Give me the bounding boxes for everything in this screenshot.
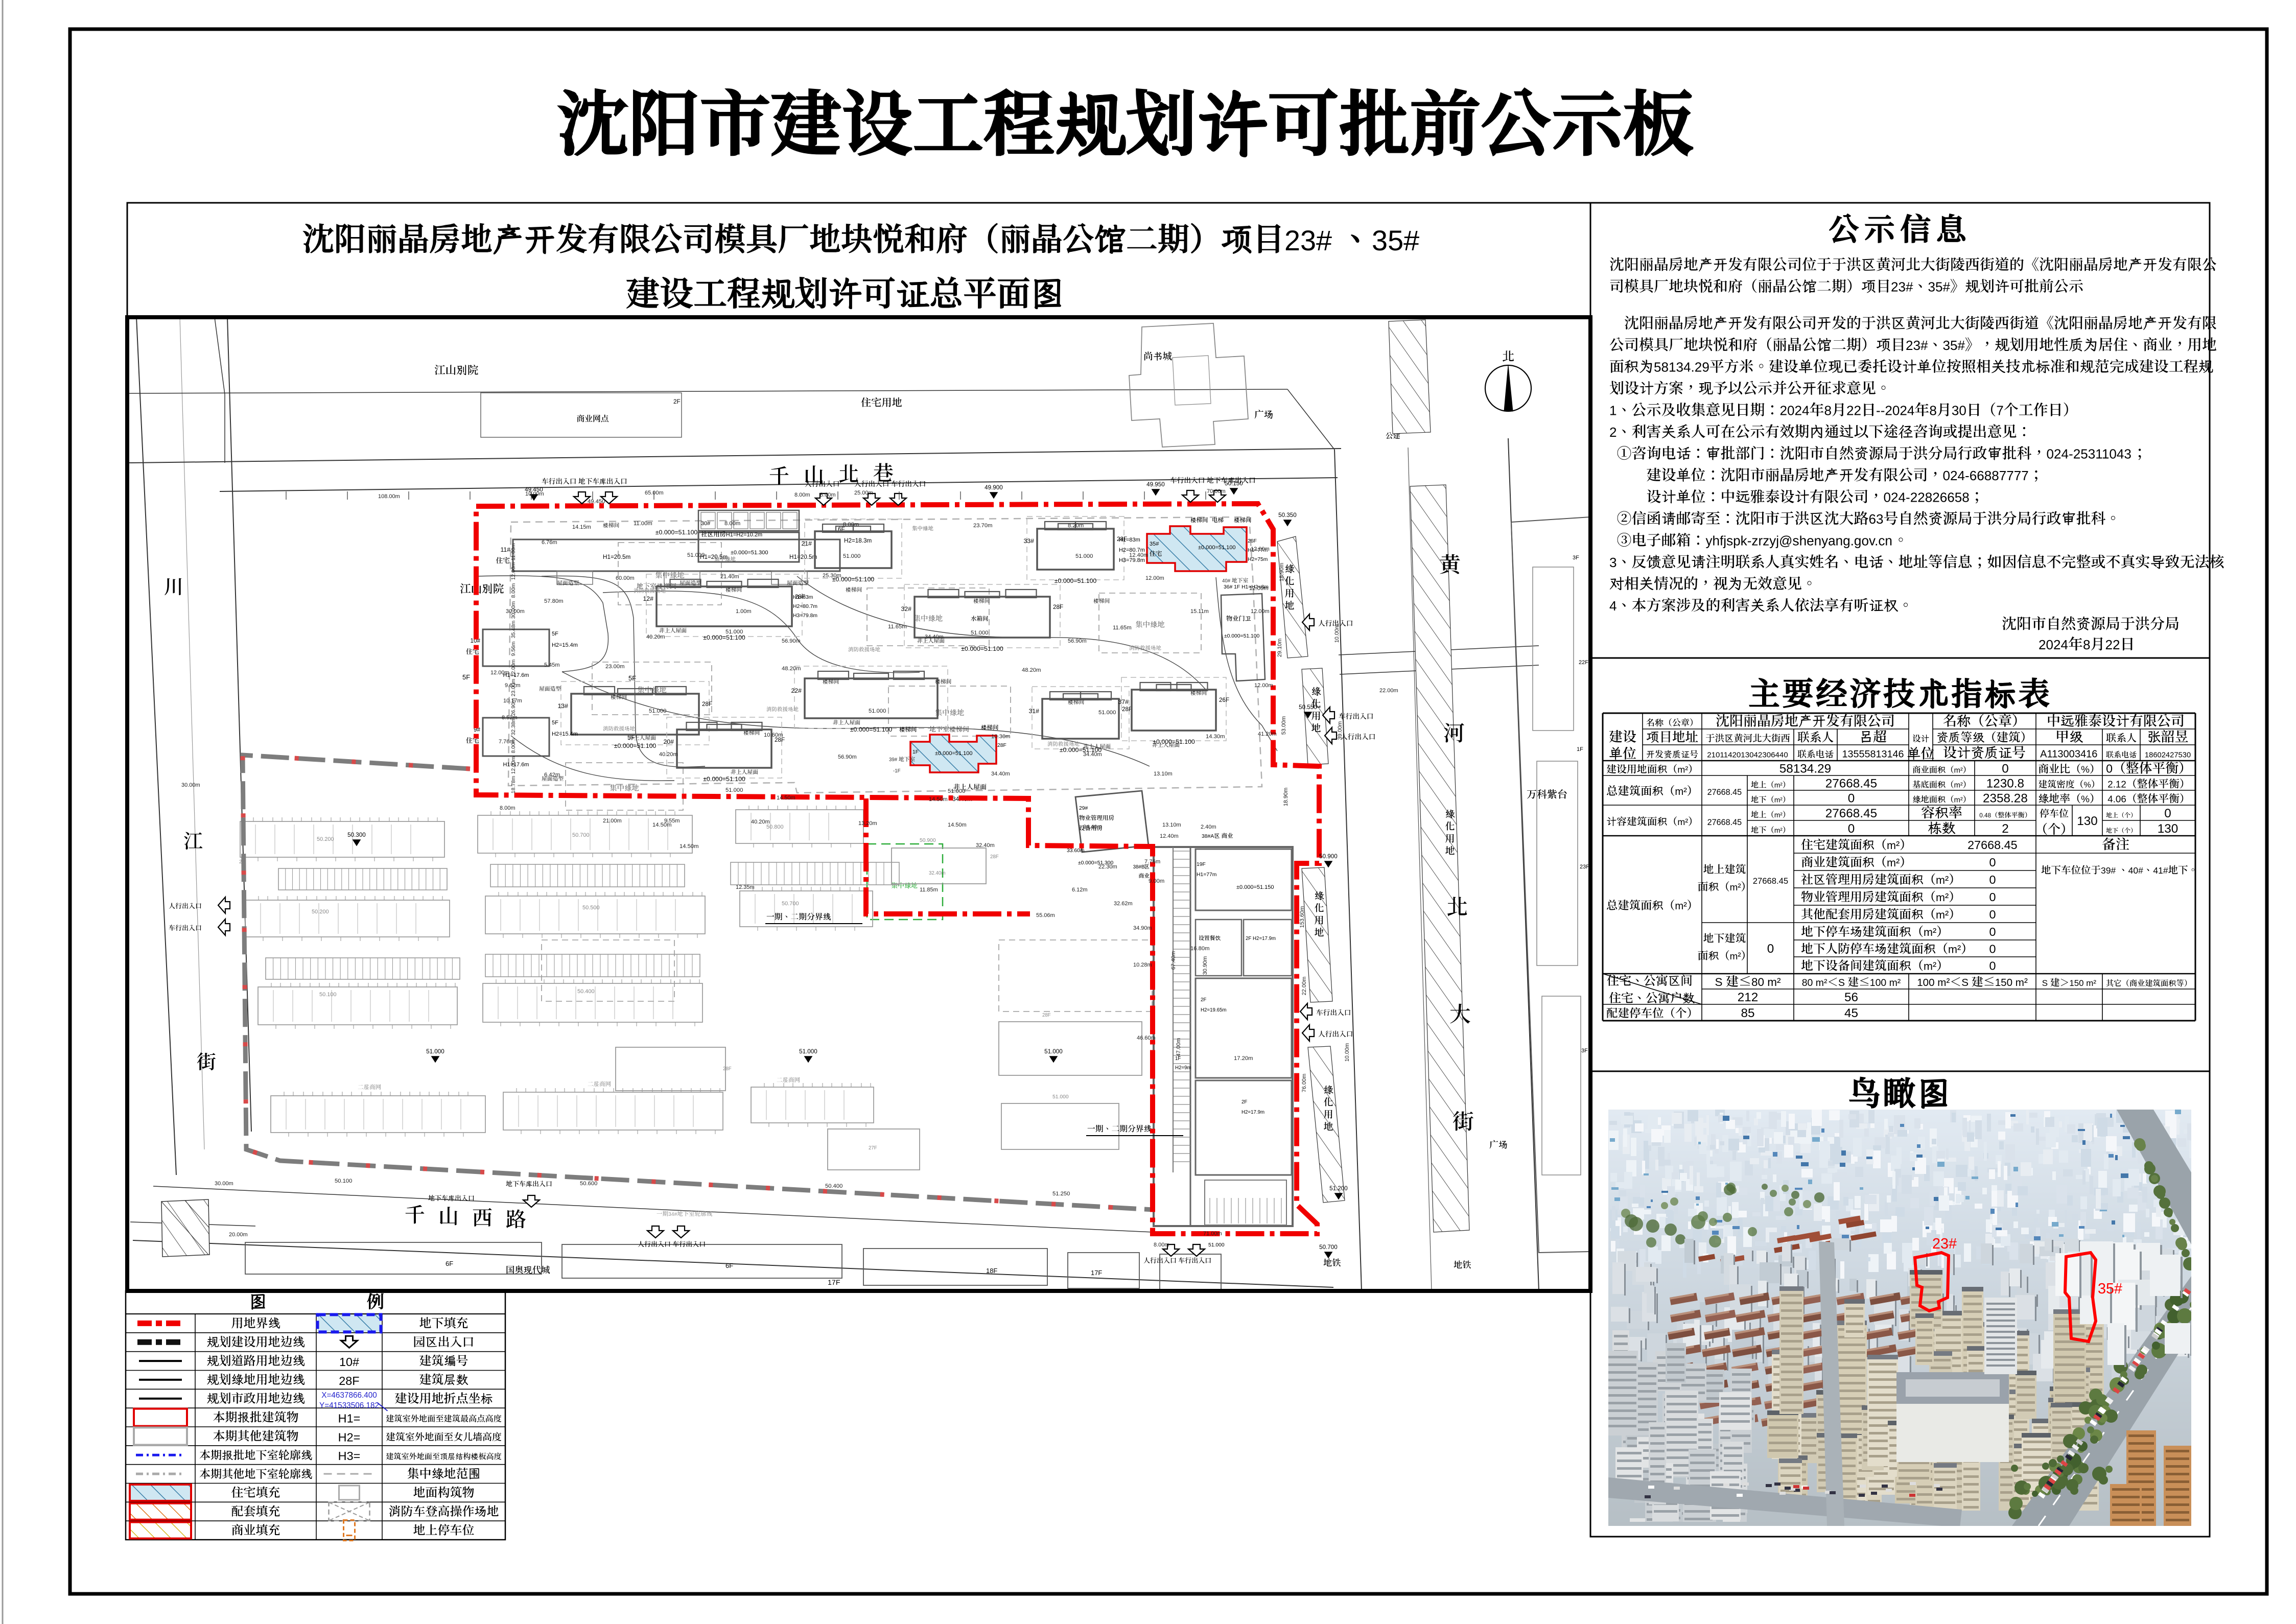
svg-text:6.42m: 6.42m — [544, 772, 560, 778]
svg-text:yhfjspk-zrzyj@shenyang.gov.cn: yhfjspk-zrzyj@shenyang.gov.cn — [1706, 533, 1892, 549]
svg-text:33#: 33# — [1023, 537, 1034, 545]
svg-text:S: S — [1838, 977, 1845, 988]
svg-text:21#: 21# — [801, 540, 812, 547]
svg-text:13.10m: 13.10m — [1154, 771, 1173, 777]
svg-text:51.000: 51.000 — [725, 787, 743, 793]
svg-text:H2=75m: H2=75m — [1248, 557, 1268, 562]
svg-text:31#: 31# — [1028, 708, 1039, 715]
svg-text:55.06m: 55.06m — [1036, 912, 1055, 919]
svg-text:m²: m² — [1675, 786, 1687, 797]
svg-text:H2=15.4m: H2=15.4m — [552, 731, 578, 737]
svg-text:%: % — [2081, 765, 2090, 775]
svg-text:51.000: 51.000 — [1052, 1094, 1069, 1100]
svg-text:50.100: 50.100 — [335, 1178, 352, 1184]
svg-text:10.00m: 10.00m — [1344, 1043, 1350, 1062]
svg-text:30: 30 — [1952, 403, 1966, 418]
svg-text:11.00m: 11.00m — [634, 521, 652, 527]
svg-text:50.900: 50.900 — [1319, 853, 1338, 860]
svg-text:51.000: 51.000 — [1098, 710, 1116, 716]
svg-text:H1=20.5m: H1=20.5m — [603, 554, 630, 560]
svg-text:Y=41533506.182: Y=41533506.182 — [319, 1401, 379, 1410]
svg-text:30#: 30# — [701, 521, 711, 527]
svg-text:51.000: 51.000 — [869, 708, 886, 714]
svg-text:28F: 28F — [1122, 706, 1132, 713]
svg-text:50.300: 50.300 — [347, 832, 366, 838]
svg-text:50.400: 50.400 — [577, 988, 595, 995]
svg-text:±0.000=51.100: ±0.000=51.100 — [935, 750, 972, 757]
svg-text:7: 7 — [1996, 403, 2004, 418]
svg-text:27668.45: 27668.45 — [1825, 777, 1877, 791]
svg-text:1F: 1F — [912, 749, 919, 755]
svg-text:67.40m: 67.40m — [1170, 951, 1177, 970]
svg-text:21.00m: 21.00m — [603, 818, 622, 824]
svg-text:14.50m: 14.50m — [948, 822, 967, 828]
svg-text:0: 0 — [1989, 925, 1996, 938]
svg-text:56.90m: 56.90m — [782, 638, 801, 644]
svg-text:56.90m: 56.90m — [838, 754, 857, 760]
svg-text:H1=: H1= — [338, 1412, 361, 1425]
svg-text:20.00m: 20.00m — [229, 1232, 248, 1238]
svg-text:m²: m² — [1936, 891, 1949, 904]
svg-text:0: 0 — [1767, 942, 1774, 956]
svg-text:m²: m² — [1677, 765, 1688, 775]
svg-text:22: 22 — [1846, 403, 1861, 418]
svg-text:40#: 40# — [1222, 578, 1231, 584]
svg-text:H2=15.4m: H2=15.4m — [552, 642, 578, 648]
svg-text:23#: 23# — [1284, 224, 1332, 256]
svg-text:33.60m: 33.60m — [1067, 848, 1085, 854]
svg-text:±0.000=51.100: ±0.000=51.100 — [1055, 577, 1097, 584]
svg-text:23#: 23# — [1906, 338, 1928, 353]
svg-text:51.000: 51.000 — [649, 708, 666, 714]
svg-text:8: 8 — [1929, 403, 1937, 418]
svg-text:63: 63 — [1869, 511, 1884, 527]
svg-text:51.000: 51.000 — [1044, 1048, 1063, 1055]
svg-text:51.200: 51.200 — [1329, 1185, 1348, 1192]
svg-text:X=4637866.400: X=4637866.400 — [321, 1391, 377, 1400]
svg-text:32.62m: 32.62m — [1114, 901, 1133, 907]
svg-text:H2=17.9m: H2=17.9m — [1241, 1110, 1264, 1115]
svg-text:27668.45: 27668.45 — [1825, 807, 1877, 820]
svg-text:13555813146: 13555813146 — [1842, 749, 1904, 760]
svg-text:m²: m² — [1774, 827, 1783, 834]
svg-text:0.48: 0.48 — [1979, 812, 1991, 819]
svg-text:1F: 1F — [1175, 1056, 1181, 1062]
svg-text:2F: 2F — [673, 398, 681, 405]
svg-text:8.00m: 8.00m — [724, 521, 740, 527]
svg-text:37#: 37# — [1118, 698, 1129, 705]
svg-text:±0.000=51.100: ±0.000=51.100 — [1198, 545, 1235, 551]
svg-text:6F: 6F — [725, 1262, 733, 1269]
svg-text:2F: 2F — [1201, 997, 1206, 1003]
svg-text:18.90m: 18.90m — [1279, 563, 1285, 582]
svg-text:m²: m² — [1887, 856, 1900, 869]
svg-text:m²: m² — [1675, 901, 1687, 912]
svg-text:9.00m: 9.00m — [1149, 878, 1164, 884]
svg-text:28F: 28F — [1053, 604, 1063, 610]
svg-text:0: 0 — [2164, 807, 2171, 820]
svg-text:H3=: H3= — [338, 1449, 361, 1463]
svg-text:3: 3 — [1609, 555, 1617, 570]
svg-text:50.150: 50.150 — [1225, 480, 1243, 487]
svg-text:m²: m² — [1924, 926, 1936, 938]
svg-text:8: 8 — [2083, 637, 2091, 652]
svg-text:12#: 12# — [643, 595, 653, 602]
svg-text:50.550: 50.550 — [1299, 704, 1317, 711]
svg-text:H2=80.7m: H2=80.7m — [793, 604, 817, 609]
svg-text:22#: 22# — [791, 687, 802, 694]
svg-text:34.40m: 34.40m — [1083, 824, 1102, 830]
svg-text:50.700: 50.700 — [572, 832, 590, 838]
svg-text:22.00m: 22.00m — [1301, 977, 1307, 996]
svg-text:35#: 35# — [1372, 224, 1419, 256]
svg-text:1: 1 — [1609, 403, 1617, 418]
svg-text:18602427530: 18602427530 — [2145, 751, 2191, 760]
svg-text:40.20m: 40.20m — [646, 634, 665, 640]
svg-text:30.00m: 30.00m — [181, 782, 200, 788]
svg-text:30.00m: 30.00m — [511, 601, 517, 619]
svg-text:12.00m: 12.00m — [1249, 585, 1269, 592]
svg-text:23.00m: 23.00m — [511, 679, 517, 697]
svg-text:51.000: 51.000 — [948, 788, 965, 794]
svg-text:20#: 20# — [663, 738, 674, 745]
svg-text:8.00m: 8.00m — [511, 739, 517, 754]
svg-text:m²: m² — [1677, 817, 1688, 827]
svg-text:150 m²: 150 m² — [1995, 977, 2028, 988]
svg-text:18.90m: 18.90m — [1283, 788, 1289, 807]
svg-text:35#: 35# — [1150, 541, 1159, 547]
svg-text:±0.000=51.300: ±0.000=51.300 — [731, 550, 768, 556]
svg-text:6.12m: 6.12m — [1072, 887, 1088, 893]
svg-text:28F: 28F — [339, 1374, 359, 1387]
svg-text:28F: 28F — [723, 1066, 732, 1072]
svg-text:23#: 23# — [1891, 279, 1913, 295]
svg-text:2358.28: 2358.28 — [1983, 792, 2028, 806]
svg-text:14.50m: 14.50m — [652, 822, 672, 828]
svg-text:12.00m: 12.00m — [490, 670, 509, 676]
svg-text:H1=83m: H1=83m — [793, 595, 813, 600]
svg-text:49.450: 49.450 — [588, 499, 605, 505]
svg-text:27668.45: 27668.45 — [1707, 788, 1742, 797]
svg-text:024-22826658: 024-22826658 — [1884, 490, 1970, 505]
svg-text:--2024: --2024 — [1876, 403, 1914, 418]
svg-text:18F: 18F — [986, 1267, 997, 1275]
svg-text:m²: m² — [1887, 839, 1900, 852]
svg-text:12.40m: 12.40m — [1160, 833, 1179, 839]
svg-text:51.000: 51.000 — [843, 553, 860, 559]
svg-text:±0.000=51.100: ±0.000=51.100 — [1224, 633, 1259, 639]
svg-text:11#: 11# — [500, 546, 510, 553]
svg-text:024-25311043: 024-25311043 — [2047, 446, 2131, 462]
svg-text:8.00m: 8.00m — [1154, 1242, 1169, 1248]
svg-text:m²: m² — [1936, 874, 1949, 886]
svg-text:10.00m: 10.00m — [1334, 624, 1340, 643]
svg-text:41.20m: 41.20m — [1258, 731, 1277, 737]
svg-text:50.100: 50.100 — [319, 992, 337, 998]
svg-text:32.40m: 32.40m — [976, 842, 995, 849]
svg-text:32.40m: 32.40m — [929, 870, 945, 876]
svg-text:16.80m: 16.80m — [1190, 946, 1210, 952]
svg-text:m²: m² — [1730, 882, 1741, 893]
svg-text:0: 0 — [1989, 959, 1996, 973]
svg-text:0: 0 — [1989, 856, 1996, 869]
svg-text:m²: m² — [1730, 951, 1741, 962]
svg-text:26.90m: 26.90m — [511, 698, 517, 716]
svg-text:H1=20.5m: H1=20.5m — [789, 554, 817, 560]
svg-text:m²: m² — [1954, 782, 1963, 790]
svg-text:23.00m: 23.00m — [605, 664, 625, 670]
svg-text:2: 2 — [1609, 425, 1617, 440]
svg-text:17.20m: 17.20m — [1234, 1055, 1253, 1062]
svg-text:4: 4 — [1609, 598, 1617, 614]
svg-text:H2=19.65m: H2=19.65m — [1201, 1007, 1227, 1013]
svg-text:22: 22 — [2105, 637, 2120, 652]
svg-text:50.400: 50.400 — [825, 1183, 842, 1189]
svg-text:12.00m: 12.00m — [1251, 546, 1270, 552]
svg-text:10.60m: 10.60m — [764, 732, 783, 738]
svg-text:38#A: 38#A — [1202, 834, 1214, 839]
svg-text:41#: 41# — [2153, 865, 2168, 876]
svg-text:11.00m: 11.00m — [511, 544, 517, 561]
svg-text:85: 85 — [1741, 1006, 1755, 1020]
svg-text:±0.000=51.100: ±0.000=51.100 — [655, 529, 698, 536]
svg-text:49.900: 49.900 — [985, 484, 1003, 491]
svg-text:32#: 32# — [901, 605, 911, 613]
svg-text:12.00m: 12.00m — [511, 562, 517, 580]
svg-text:35#: 35# — [2098, 1281, 2122, 1297]
svg-text:H3=79.8m: H3=79.8m — [793, 613, 817, 619]
svg-text:56: 56 — [1844, 991, 1858, 1004]
svg-text:14.15m: 14.15m — [572, 524, 591, 530]
svg-text:12.00m: 12.00m — [1251, 608, 1270, 615]
svg-text:76.00m: 76.00m — [1301, 1074, 1307, 1093]
svg-text:0: 0 — [1989, 873, 1996, 886]
svg-text:m²: m² — [1924, 960, 1936, 973]
svg-text:80 m²: 80 m² — [1802, 977, 1828, 988]
svg-text:0: 0 — [2106, 762, 2113, 775]
svg-text:27668.45: 27668.45 — [1707, 818, 1742, 827]
svg-text:26F: 26F — [1248, 538, 1257, 544]
svg-text:34.40m: 34.40m — [1083, 751, 1102, 758]
svg-text:-1F: -1F — [893, 768, 901, 774]
svg-text:±0.000=51.100: ±0.000=51.100 — [850, 726, 893, 733]
svg-text:30.90m: 30.90m — [1202, 956, 1208, 975]
svg-text:1230.8: 1230.8 — [1986, 777, 2024, 791]
svg-text:13#: 13# — [557, 702, 568, 710]
svg-text:28F: 28F — [997, 743, 1006, 748]
svg-text:58134.29: 58134.29 — [1654, 360, 1709, 375]
svg-text:%: % — [2081, 794, 2090, 805]
svg-text:47.00m: 47.00m — [1176, 1038, 1182, 1057]
svg-text:71.00m: 71.00m — [1203, 1231, 1222, 1237]
svg-text:23F: 23F — [1580, 864, 1589, 870]
svg-text:28F: 28F — [990, 854, 999, 860]
svg-text:10#: 10# — [339, 1355, 359, 1369]
svg-text:108.00m: 108.00m — [378, 493, 400, 500]
svg-text:14.50m: 14.50m — [777, 795, 795, 801]
svg-text:19F: 19F — [1197, 862, 1206, 867]
svg-text:212: 212 — [1738, 991, 1759, 1004]
svg-text:51.000: 51.000 — [1208, 1242, 1225, 1248]
svg-text:58134.29: 58134.29 — [1779, 762, 1831, 776]
svg-text:50.700: 50.700 — [782, 901, 799, 907]
svg-text:50.500: 50.500 — [582, 905, 600, 911]
svg-text:m²: m² — [1774, 796, 1783, 804]
svg-text:5F: 5F — [462, 673, 470, 681]
svg-text:m²: m² — [1774, 811, 1783, 819]
svg-text:H2=: H2= — [338, 1430, 361, 1444]
svg-text:51.250: 51.250 — [1052, 1191, 1070, 1197]
svg-text:80 m²: 80 m² — [1751, 976, 1781, 988]
svg-text:50.200: 50.200 — [317, 836, 334, 842]
svg-text:28F: 28F — [1042, 1013, 1051, 1018]
svg-text:±0.000=51.100: ±0.000=51.100 — [703, 775, 745, 783]
svg-text:4.06: 4.06 — [2107, 794, 2126, 805]
svg-text:12.00m: 12.00m — [511, 757, 517, 774]
svg-text:35#: 35# — [1943, 338, 1965, 353]
svg-text:8.00m: 8.00m — [500, 805, 516, 811]
svg-text:18.78m: 18.78m — [511, 776, 517, 794]
svg-text:22F: 22F — [1579, 660, 1588, 666]
svg-text:6.76m: 6.76m — [542, 539, 557, 546]
svg-text:10.00m: 10.00m — [525, 491, 544, 497]
svg-text:m²: m² — [1936, 908, 1949, 921]
svg-text:12.40m: 12.40m — [1129, 552, 1149, 558]
svg-text:153.60m: 153.60m — [1299, 906, 1305, 928]
svg-text:25.00m: 25.00m — [854, 490, 873, 496]
svg-text:14.50m: 14.50m — [929, 796, 948, 803]
svg-text:2.12: 2.12 — [2107, 779, 2126, 790]
svg-text:50.700: 50.700 — [1319, 1244, 1338, 1251]
svg-text:±0.000=51.100: ±0.000=51.100 — [961, 645, 1003, 652]
svg-text:45: 45 — [1844, 1006, 1858, 1020]
svg-text:2F: 2F — [1241, 1099, 1247, 1105]
svg-text:10.30m: 10.30m — [991, 734, 1011, 740]
svg-text:2101142013042306440: 2101142013042306440 — [1707, 751, 1788, 760]
svg-text:H1=83m: H1=83m — [1119, 537, 1140, 543]
svg-text:±0.000=51.150: ±0.000=51.150 — [1236, 884, 1274, 890]
svg-text:12.00m: 12.00m — [1145, 575, 1164, 581]
svg-text:27668.45: 27668.45 — [1967, 838, 2018, 852]
svg-text:S: S — [1961, 977, 1969, 988]
svg-text:51.000: 51.000 — [687, 552, 705, 558]
svg-text:2024: 2024 — [2039, 637, 2068, 652]
svg-text:12.00m: 12.00m — [1254, 682, 1273, 689]
svg-text:100 m²: 100 m² — [1870, 977, 1901, 988]
svg-text:1.00m: 1.00m — [736, 608, 752, 615]
svg-text:27F: 27F — [869, 1145, 877, 1151]
svg-text:0: 0 — [2002, 762, 2009, 776]
svg-text:30.00m: 30.00m — [215, 1181, 233, 1187]
svg-text:23#: 23# — [1932, 1236, 1957, 1252]
svg-text:60.00m: 60.00m — [616, 575, 635, 581]
svg-text:0: 0 — [1848, 792, 1855, 806]
svg-text:m²: m² — [1948, 943, 1961, 956]
svg-text:29.10m: 29.10m — [1277, 639, 1283, 657]
svg-text:27668.45: 27668.45 — [1753, 876, 1788, 886]
svg-text:130: 130 — [2158, 822, 2178, 836]
svg-text:51.000: 51.000 — [426, 1048, 444, 1055]
svg-text:28F: 28F — [702, 701, 712, 708]
svg-text:51.000: 51.000 — [971, 630, 988, 636]
svg-text:8.00m: 8.00m — [794, 492, 810, 498]
svg-text:57.80m: 57.80m — [544, 598, 564, 604]
svg-text:35#: 35# — [1928, 279, 1951, 295]
svg-text:39#: 39# — [889, 757, 898, 763]
svg-text:49.950: 49.950 — [1146, 481, 1165, 488]
svg-text:8.00m: 8.00m — [820, 492, 836, 498]
svg-text:26F: 26F — [1219, 697, 1229, 703]
svg-text:12.00m: 12.00m — [511, 660, 517, 677]
svg-text:0: 0 — [1848, 822, 1855, 836]
svg-text:25.30m: 25.30m — [823, 573, 841, 579]
svg-text:8.20m: 8.20m — [1068, 523, 1084, 529]
svg-text:70.00m: 70.00m — [1207, 488, 1226, 495]
svg-text:11.85m: 11.85m — [920, 887, 938, 893]
svg-text:50.200: 50.200 — [312, 909, 329, 915]
svg-text:H2=9m: H2=9m — [1175, 1065, 1191, 1071]
svg-text:34.40m: 34.40m — [925, 634, 944, 640]
svg-text:5F: 5F — [552, 631, 558, 637]
svg-text:024-66887777: 024-66887777 — [1943, 468, 2029, 483]
svg-text:±0.000=51.100: ±0.000=51.100 — [1153, 738, 1195, 745]
svg-text:S: S — [2042, 978, 2048, 988]
svg-text:3F: 3F — [1581, 1048, 1588, 1054]
svg-text:m²: m² — [1954, 796, 1963, 805]
svg-text:14.50m: 14.50m — [680, 843, 699, 850]
svg-text:12.35m: 12.35m — [736, 884, 755, 890]
svg-text:11.65m: 11.65m — [1113, 625, 1132, 631]
svg-text:32.38m: 32.38m — [511, 718, 517, 736]
svg-text:10.28m: 10.28m — [1133, 962, 1152, 968]
svg-text:A113003416: A113003416 — [2040, 749, 2097, 760]
svg-text:34.40m: 34.40m — [991, 771, 1010, 777]
svg-text:29#: 29# — [1079, 806, 1088, 811]
svg-text:%: % — [2083, 781, 2091, 790]
svg-text:m²: m² — [1954, 767, 1963, 775]
svg-text:m²: m² — [1774, 782, 1783, 789]
svg-text:40.20m: 40.20m — [659, 751, 678, 758]
svg-text:0: 0 — [1989, 890, 1996, 904]
svg-text:39.00m: 39.00m — [1337, 721, 1343, 740]
svg-text:0: 0 — [1989, 908, 1996, 921]
svg-text:50.350: 50.350 — [1278, 512, 1297, 519]
svg-text:8.00m: 8.00m — [843, 522, 859, 528]
svg-text:5F: 5F — [552, 720, 558, 726]
svg-text:S: S — [1715, 976, 1723, 988]
svg-text:22.30m: 22.30m — [1098, 864, 1117, 870]
svg-text:15.11m: 15.11m — [1190, 608, 1209, 615]
svg-text:38#B: 38#B — [1133, 864, 1145, 870]
svg-text:150 m²: 150 m² — [2069, 978, 2096, 988]
svg-text:1F: 1F — [1577, 746, 1583, 752]
svg-text:21.40m: 21.40m — [720, 574, 739, 580]
svg-text:56.90m: 56.90m — [1068, 638, 1087, 644]
svg-text:23.70m: 23.70m — [973, 523, 993, 529]
svg-text:±0.000=51.100: ±0.000=51.100 — [703, 634, 745, 641]
svg-text:51.000: 51.000 — [799, 1048, 817, 1055]
svg-text:H1=77m: H1=77m — [1197, 872, 1216, 878]
svg-text:2F H2=17.9m: 2F H2=17.9m — [1246, 936, 1276, 942]
svg-text:51.000: 51.000 — [1075, 553, 1093, 559]
svg-text:14.30m: 14.30m — [1206, 734, 1225, 740]
svg-text:8: 8 — [1824, 403, 1832, 418]
svg-text:±0.000=51.100: ±0.000=51.100 — [614, 742, 657, 749]
svg-text:17F: 17F — [828, 1279, 840, 1287]
svg-text:51.000: 51.000 — [725, 629, 743, 635]
svg-text:34#: 34# — [668, 1212, 677, 1217]
svg-text:40.20m: 40.20m — [751, 819, 770, 825]
